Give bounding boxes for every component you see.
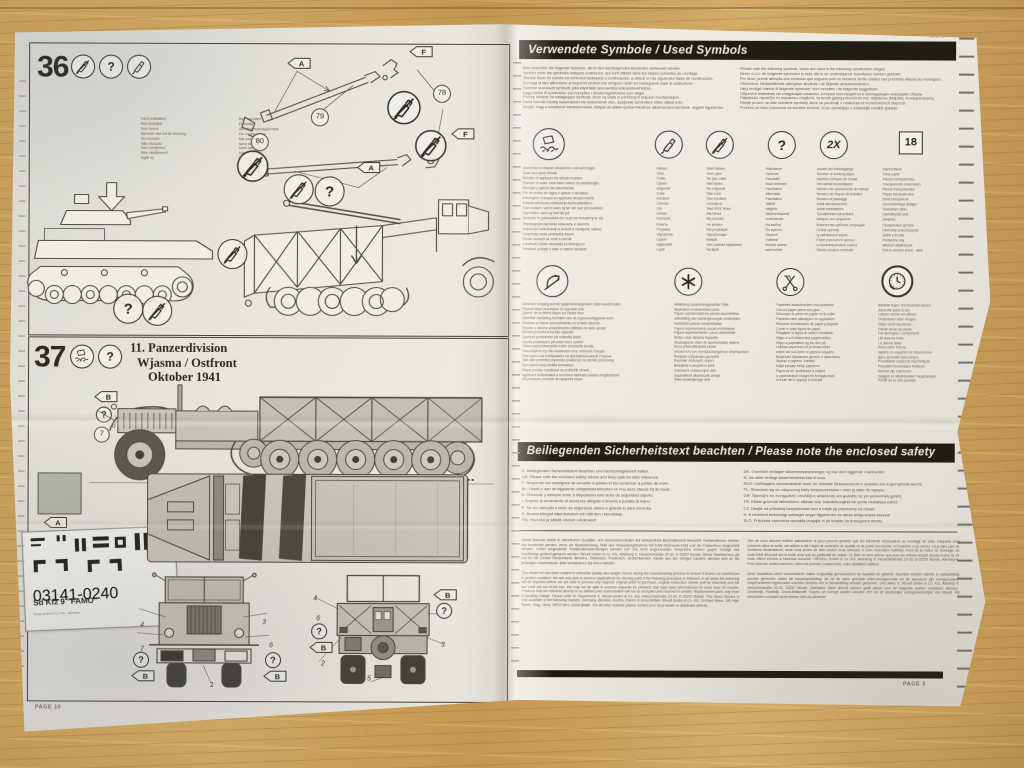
part-number-80: 80 [251, 133, 269, 151]
legend-col-glue: KlebenGlueCollerLijmenEngomarColarIncoll… [656, 167, 700, 253]
text-line: Preslikač potopiti v vodo in zatem nanaš… [522, 247, 650, 252]
svg-text:F: F [463, 130, 468, 139]
optional-icon: ? [768, 131, 796, 159]
optional-icon: ? [436, 603, 452, 619]
text-line: Število korakov montaže [816, 248, 880, 253]
no-glue-icon [284, 174, 314, 204]
assembled-parts-icon [674, 268, 702, 296]
text-line: Prosimo za Vašo pozornost na sledeče sim… [740, 106, 956, 112]
wood-plank-seam [0, 7, 1024, 9]
decal-soak-icon [533, 128, 565, 160]
tow-bar-linework [242, 59, 443, 188]
glue-icon [655, 131, 683, 159]
famo-rear-view [327, 573, 439, 687]
text-line: Pustiti da se deli posušijo [878, 379, 964, 384]
page-number-left: PAGE 10 [35, 704, 61, 710]
text-line: FIN: Huomioi ja säilytä oheiset varoituk… [521, 517, 739, 524]
not-included-col1: Nicht enthaltenNot includedNon fourniBeh… [141, 117, 227, 161]
repeat-opposite-icon [536, 265, 568, 297]
color-flag-f2: F [451, 128, 475, 140]
legal-paragraph-fr: Afin de vous assurer entière satisfactio… [747, 539, 959, 567]
legal-col1: Dieser Bausatz wurde in mehrfachen Quali… [521, 538, 739, 614]
no-glue-icon [217, 239, 247, 269]
instruction-sheet: 03141 36 ? Nicht enthaltenNot includedNo… [7, 20, 991, 735]
legend-col-decal: Abziehbild in Wasser einweichen und anbr… [522, 166, 650, 252]
bottom-rule [517, 670, 943, 678]
color-flag-b: B [263, 670, 287, 682]
text-line: način izbire [765, 248, 817, 253]
callout-1: 1 [210, 682, 214, 689]
legend-col-clear-parts: KlarsichtteileClear partsPièces transpar… [882, 167, 956, 253]
photo-scene: 03141 36 ? Nicht enthaltenNot includedNo… [0, 0, 1024, 768]
page-number-right: PAGE 3 [903, 681, 926, 687]
callout-3: 3 [262, 619, 266, 626]
callout-4: 4 [313, 595, 317, 602]
scissors-icon [776, 268, 804, 296]
optional-icon: ? [315, 176, 345, 206]
legend-col-drying: Beiseite legen und trocknen lassenAllow … [878, 303, 964, 383]
famo-front-view [147, 573, 261, 689]
svg-text:A: A [55, 518, 61, 527]
legal-col2: Afin de vous assurer entière satisfactio… [747, 539, 959, 606]
glue-icon [127, 55, 151, 79]
part-number-78: 78 [433, 85, 451, 103]
used-symbols-header: Verwendete Symbole / Used Symbols [519, 40, 956, 61]
fold-marks-center [511, 62, 521, 662]
callout-6: 6 [316, 615, 320, 622]
legend-col-assembled: Abbildung zusammengesetzter TeileIllustr… [674, 303, 774, 383]
legend-col-steps: Anzahl der ArbeitsgängeNumber of working… [816, 167, 880, 253]
color-flag-f: F [409, 46, 433, 58]
text-line: Ne lepiti [706, 247, 762, 252]
optional-icon: ? [98, 345, 122, 369]
text-line: Isti postopek ponoviti na nasprotni stra… [522, 377, 672, 382]
clock-icon [881, 265, 913, 297]
svg-text:A: A [369, 163, 375, 172]
color-flag-a: A [43, 516, 67, 528]
famo-halftrack-drawing [240, 177, 503, 330]
symbols-intro-col2: Please note the following symbols, which… [740, 67, 956, 112]
optional-icon: ? [311, 623, 327, 639]
legend-col-no-glue: Nicht klebenDon't glueNe pas collerNiet … [706, 167, 762, 253]
color-flag-b: B [309, 641, 333, 653]
scheme-title-line1: 11. Panzerdivision [130, 341, 290, 356]
safety-col2: DK: Overhold vedlagte sikkerhedsanvisnin… [743, 469, 957, 525]
step-37-number: 37 [34, 342, 65, 372]
no-glue-icon [706, 131, 734, 159]
decal-soak-icon [70, 345, 94, 369]
legal-paragraph-en: This Model Kit has been subject to exten… [521, 571, 739, 608]
text-line: Izrezati del iz papirja in nalepiti [776, 378, 876, 383]
callout-3: 3 [441, 642, 445, 649]
svg-text:B: B [143, 672, 149, 681]
text-line: Slika sestavljenega dela [674, 378, 774, 383]
legal-paragraph-de: Dieser Bausatz wurde in mehrfachen Quali… [521, 538, 739, 566]
svg-text:B: B [321, 643, 327, 652]
clear-parts-icon: 18 [899, 131, 923, 154]
text-line: Ingår ej [141, 156, 227, 161]
text-line: Kérjük, hogy a következő szimbólumokat, … [523, 105, 737, 111]
part-number-79: 79 [311, 108, 329, 126]
color-flag-a: A [287, 57, 311, 69]
optional-icon: ? [113, 294, 143, 324]
text-line: SLO: Priložena varnostna navodila izvaja… [743, 518, 957, 525]
svg-text:B: B [445, 591, 451, 600]
callout-5: 5 [367, 676, 371, 683]
legend-col-cut-paper: Papierteil ausschneiden und anklebenCut … [776, 303, 876, 383]
svg-text:B: B [275, 672, 281, 681]
callout-6: 6 [269, 642, 273, 649]
color-flag-b: B [131, 670, 155, 682]
no-glue-icon [142, 296, 172, 326]
legal-divider-rule [517, 530, 957, 533]
optional-icon: ? [99, 55, 123, 79]
optional-icon: ? [133, 652, 149, 668]
number-of-steps-icon: 2X [820, 131, 848, 159]
no-glue-icon [71, 55, 95, 79]
callout-2: 2 [321, 660, 325, 667]
text-line: Deli iz umetne snovi - vidni [882, 248, 956, 253]
decal-footnote: Revell GmbH & Co. KG · Germany [34, 610, 80, 616]
safety-col1: D: Beiliegenden Sicherheitstext beachten… [521, 468, 739, 524]
down-arrow-icon [99, 183, 125, 211]
scheme-title-line2: Wjasma / Ostfront [130, 355, 290, 370]
fold-marks-right-edge [957, 38, 974, 700]
paint-color-swatch [38, 472, 82, 514]
decal-kit-name: Sd Kfz 9 "FAMO" [33, 596, 98, 608]
safety-header: Beiliegenden Sicherheitstext beachten / … [518, 442, 955, 463]
svg-text:F: F [421, 48, 426, 57]
text-line: Lepiti [656, 247, 700, 252]
step-36-number: 36 [37, 52, 68, 82]
legend-col-repeat: Gleichen Vorgang auf der gegenüberliegen… [522, 302, 672, 382]
legend-col-optional: WahlweiseOptionalFacultatifNaar believen… [765, 167, 817, 253]
svg-text:A: A [299, 59, 305, 68]
legal-paragraph-nl: Deze bouwdoos werd verscheidene malen zo… [747, 572, 959, 600]
callout-4: 4 [140, 622, 144, 629]
color-flag-b: B [433, 589, 457, 601]
color-flag-a2: A [357, 162, 381, 174]
famo-top-view [143, 464, 471, 571]
optional-icon: ? [265, 652, 281, 668]
symbols-intro-col1: Bitte beachten Sie folgende Symbole, die… [523, 66, 737, 111]
